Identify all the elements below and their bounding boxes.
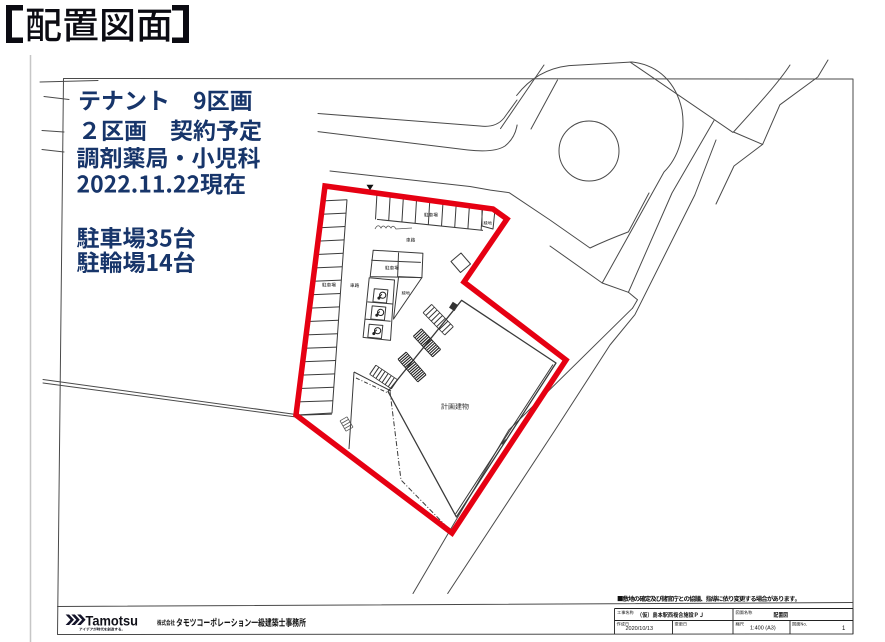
svg-text:アイデアが時代を創造する。: アイデアが時代を創造する。 — [79, 627, 125, 633]
svg-text:タモツコーポレーション一級建築士事務所: タモツコーポレーション一級建築士事務所 — [176, 615, 306, 629]
svg-text:（仮）島本駅西複合施設ＰＪ: （仮）島本駅西複合施設ＰＪ — [637, 610, 704, 619]
svg-text:駐車場: 駐車場 — [322, 283, 336, 289]
svg-text:図面名称: 図面名称 — [736, 610, 754, 616]
svg-text:車路: 車路 — [406, 238, 416, 244]
svg-text:緑地: 緑地 — [484, 221, 493, 227]
svg-text:車路: 車路 — [350, 283, 360, 289]
svg-text:工事名称: 工事名称 — [617, 610, 635, 616]
svg-text:1:400 (A3): 1:400 (A3) — [750, 626, 776, 632]
svg-text:駐輪場14台: 駐輪場14台 — [77, 244, 196, 278]
svg-text:株式会社: 株式会社 — [157, 617, 175, 627]
svg-text:配置図面: 配置図面 — [25, 0, 173, 50]
svg-text:駐車場: 駐車場 — [385, 266, 399, 272]
svg-text:配置図: 配置図 — [774, 610, 789, 619]
svg-text:変更日: 変更日 — [675, 622, 688, 628]
svg-text:縮尺: 縮尺 — [736, 622, 745, 628]
svg-text:図面No.: 図面No. — [792, 622, 807, 628]
svg-text:Tamotsu: Tamotsu — [86, 613, 139, 628]
svg-text:駐車場: 駐車場 — [424, 213, 438, 219]
svg-text:2020/10/13: 2020/10/13 — [626, 626, 654, 632]
svg-text:2022.11.22現在: 2022.11.22現在 — [77, 166, 247, 200]
svg-text:計画建物: 計画建物 — [441, 402, 469, 412]
svg-text:緑地: 緑地 — [402, 291, 411, 297]
svg-text:■敷地の確定及び諸官庁との協議、指導に依り変更する場合があり: ■敷地の確定及び諸官庁との協議、指導に依り変更する場合があります。 — [617, 594, 801, 603]
